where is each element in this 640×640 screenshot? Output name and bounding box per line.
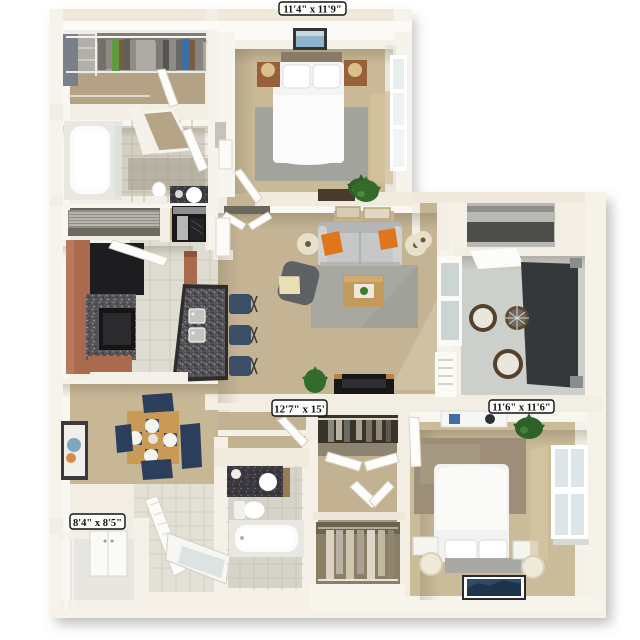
svg-text:8'4" x 8'5": 8'4" x 8'5" — [73, 518, 122, 529]
svg-text:12'7" x 15': 12'7" x 15' — [274, 404, 325, 416]
svg-text:11'4" x 11'9": 11'4" x 11'9" — [283, 5, 341, 16]
svg-text:11'6" x 11'6": 11'6" x 11'6" — [492, 403, 550, 414]
